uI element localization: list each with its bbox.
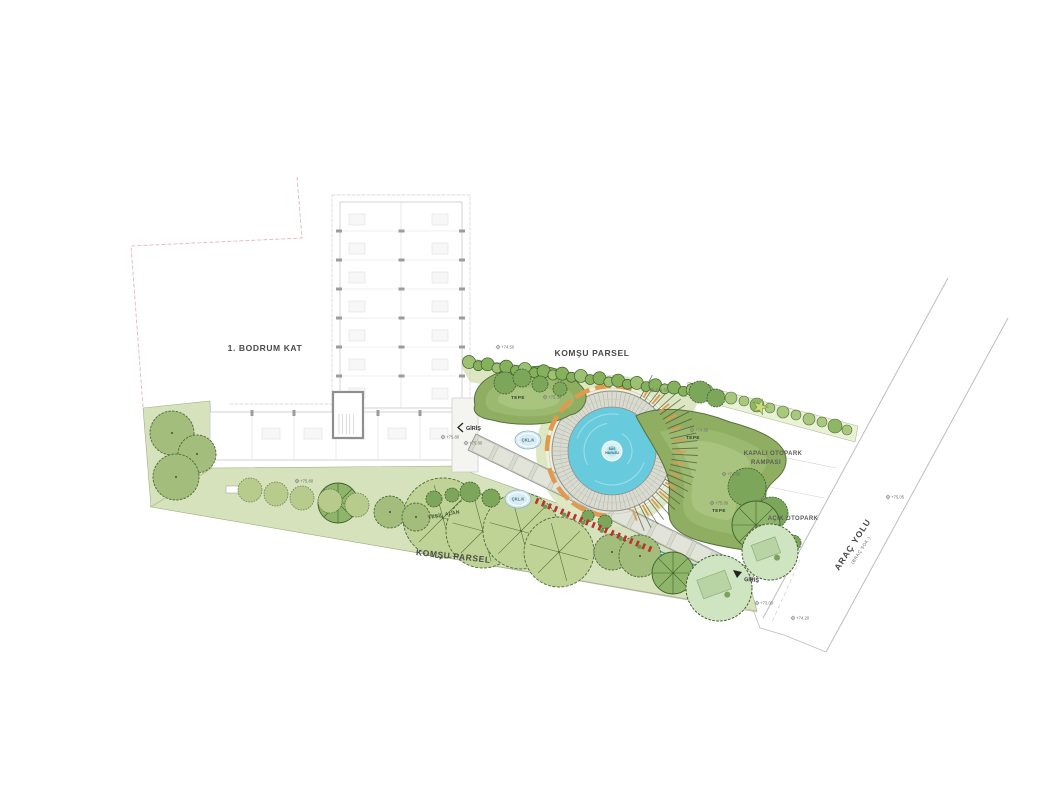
strip-shrub xyxy=(803,413,815,425)
tree-canopy-dark xyxy=(513,369,531,387)
column-mark xyxy=(419,410,422,416)
unit-furniture xyxy=(349,214,365,225)
column-mark xyxy=(459,288,465,291)
elevation-label: +75.80 xyxy=(300,479,314,484)
site-plan-drawing: SÜS HAVUZU 1. BODRUM KAT KOMŞU PARSEL KO… xyxy=(0,0,1060,795)
elevation-label: +75.80 xyxy=(446,435,460,440)
bench-shrub xyxy=(618,536,622,540)
column-mark xyxy=(399,259,405,262)
strip-shrub xyxy=(765,403,775,413)
unit-furniture xyxy=(304,428,322,439)
entrance-street-label: GİRİŞ xyxy=(744,576,760,584)
elevation-label: +74.50 xyxy=(727,472,741,477)
column-mark xyxy=(336,259,342,262)
column-mark xyxy=(459,375,465,378)
column-mark xyxy=(293,410,296,416)
column-mark xyxy=(399,230,405,233)
tree-canopy-dark xyxy=(707,389,725,407)
unit-furniture xyxy=(432,330,448,341)
open-parking-label: AÇIK OTOPARK xyxy=(768,516,819,522)
tree-center xyxy=(611,551,613,553)
strip-shrub xyxy=(817,417,827,427)
hill-label: TEPE xyxy=(511,395,525,400)
bench-shrub xyxy=(543,504,547,508)
column-mark xyxy=(336,288,342,291)
column-mark xyxy=(459,346,465,349)
bench-shrub xyxy=(637,544,641,548)
shrub xyxy=(238,478,262,502)
unit-furniture xyxy=(432,359,448,370)
elevation-label: +74.50 xyxy=(501,345,515,350)
unit-furniture xyxy=(432,388,448,399)
lawn-dot xyxy=(774,555,780,561)
elevation-label: +75.30 xyxy=(715,501,729,506)
column-mark xyxy=(399,317,405,320)
column-mark xyxy=(459,230,465,233)
strip-shrub xyxy=(777,406,789,418)
strip-shrub xyxy=(791,410,801,420)
tree-canopy-dark xyxy=(532,376,548,392)
entrance-building-label: GİRİŞ xyxy=(466,425,481,432)
unit-furniture xyxy=(349,359,365,370)
column-mark xyxy=(459,317,465,320)
strip-shrub xyxy=(842,425,852,435)
column-mark xyxy=(251,410,254,416)
hill-label: TEPE xyxy=(712,508,726,513)
elevation-label: +74.50 xyxy=(655,388,669,393)
pool-label-2: HAVUZU xyxy=(605,451,619,455)
gravel-label: ÇKL.K xyxy=(522,438,535,443)
unit-furniture xyxy=(349,301,365,312)
elevation-label: +74.50 xyxy=(695,428,709,433)
bench-shrub xyxy=(581,520,585,524)
column-mark xyxy=(377,410,380,416)
column-mark xyxy=(336,346,342,349)
tree-canopy-dark xyxy=(460,482,480,502)
floor-label: 1. BODRUM KAT xyxy=(228,343,303,353)
tree-center xyxy=(558,551,560,553)
shrub xyxy=(318,489,342,513)
strip-shrub xyxy=(739,396,749,406)
bench-shrub xyxy=(600,528,604,532)
tree-canopy-dark xyxy=(494,372,516,394)
elevation-label: +75.05 xyxy=(891,495,905,500)
column-mark xyxy=(459,259,465,262)
elevation-label: +73.00 xyxy=(760,601,774,606)
elevation-label: +75.80 xyxy=(469,441,483,446)
shrub xyxy=(290,486,314,510)
tree-center xyxy=(175,476,177,478)
unit-furniture xyxy=(262,428,280,439)
tree-center xyxy=(415,516,417,518)
bench-shrub xyxy=(562,512,566,516)
shrub xyxy=(264,482,288,506)
tree-center xyxy=(639,555,641,557)
tree-center xyxy=(196,453,198,455)
tree-center xyxy=(171,432,173,434)
unit-furniture xyxy=(349,243,365,254)
unit-furniture xyxy=(432,214,448,225)
unit-furniture xyxy=(432,301,448,312)
unit-furniture xyxy=(349,330,365,341)
tree-canopy-dark xyxy=(445,488,459,502)
column-mark xyxy=(399,346,405,349)
unit-furniture xyxy=(388,428,406,439)
stair-core xyxy=(333,392,363,438)
column-mark xyxy=(336,317,342,320)
gravel-label: ÇKL.K xyxy=(512,497,525,502)
unit-furniture xyxy=(349,272,365,283)
tree-canopy-dark xyxy=(426,491,442,507)
tree-canopy-dark xyxy=(482,489,500,507)
neighbor-parcel-top-label: KOMŞU PARSEL xyxy=(554,348,629,358)
shrub xyxy=(345,493,369,517)
column-mark xyxy=(399,288,405,291)
covered-parking-label-1: KAPALI OTOPARK xyxy=(744,451,803,457)
lawn-dot xyxy=(724,592,730,598)
column-mark xyxy=(336,230,342,233)
unit-furniture xyxy=(432,272,448,283)
tree-center xyxy=(389,511,391,513)
site-plan-page: { "plan": { "floor_label": "1. BODRUM KA… xyxy=(0,0,1060,795)
tree-center xyxy=(520,530,522,532)
covered-parking-label-2: RAMPASI xyxy=(751,460,781,466)
unit-furniture xyxy=(432,243,448,254)
column-mark xyxy=(336,375,342,378)
hill-label: TEPE xyxy=(686,435,700,440)
strip-shrub xyxy=(725,392,737,404)
column-mark xyxy=(399,375,405,378)
elevation-label: +75.30 xyxy=(548,395,562,400)
elevation-label: +74.20 xyxy=(796,616,810,621)
strip-shrub xyxy=(828,419,842,433)
